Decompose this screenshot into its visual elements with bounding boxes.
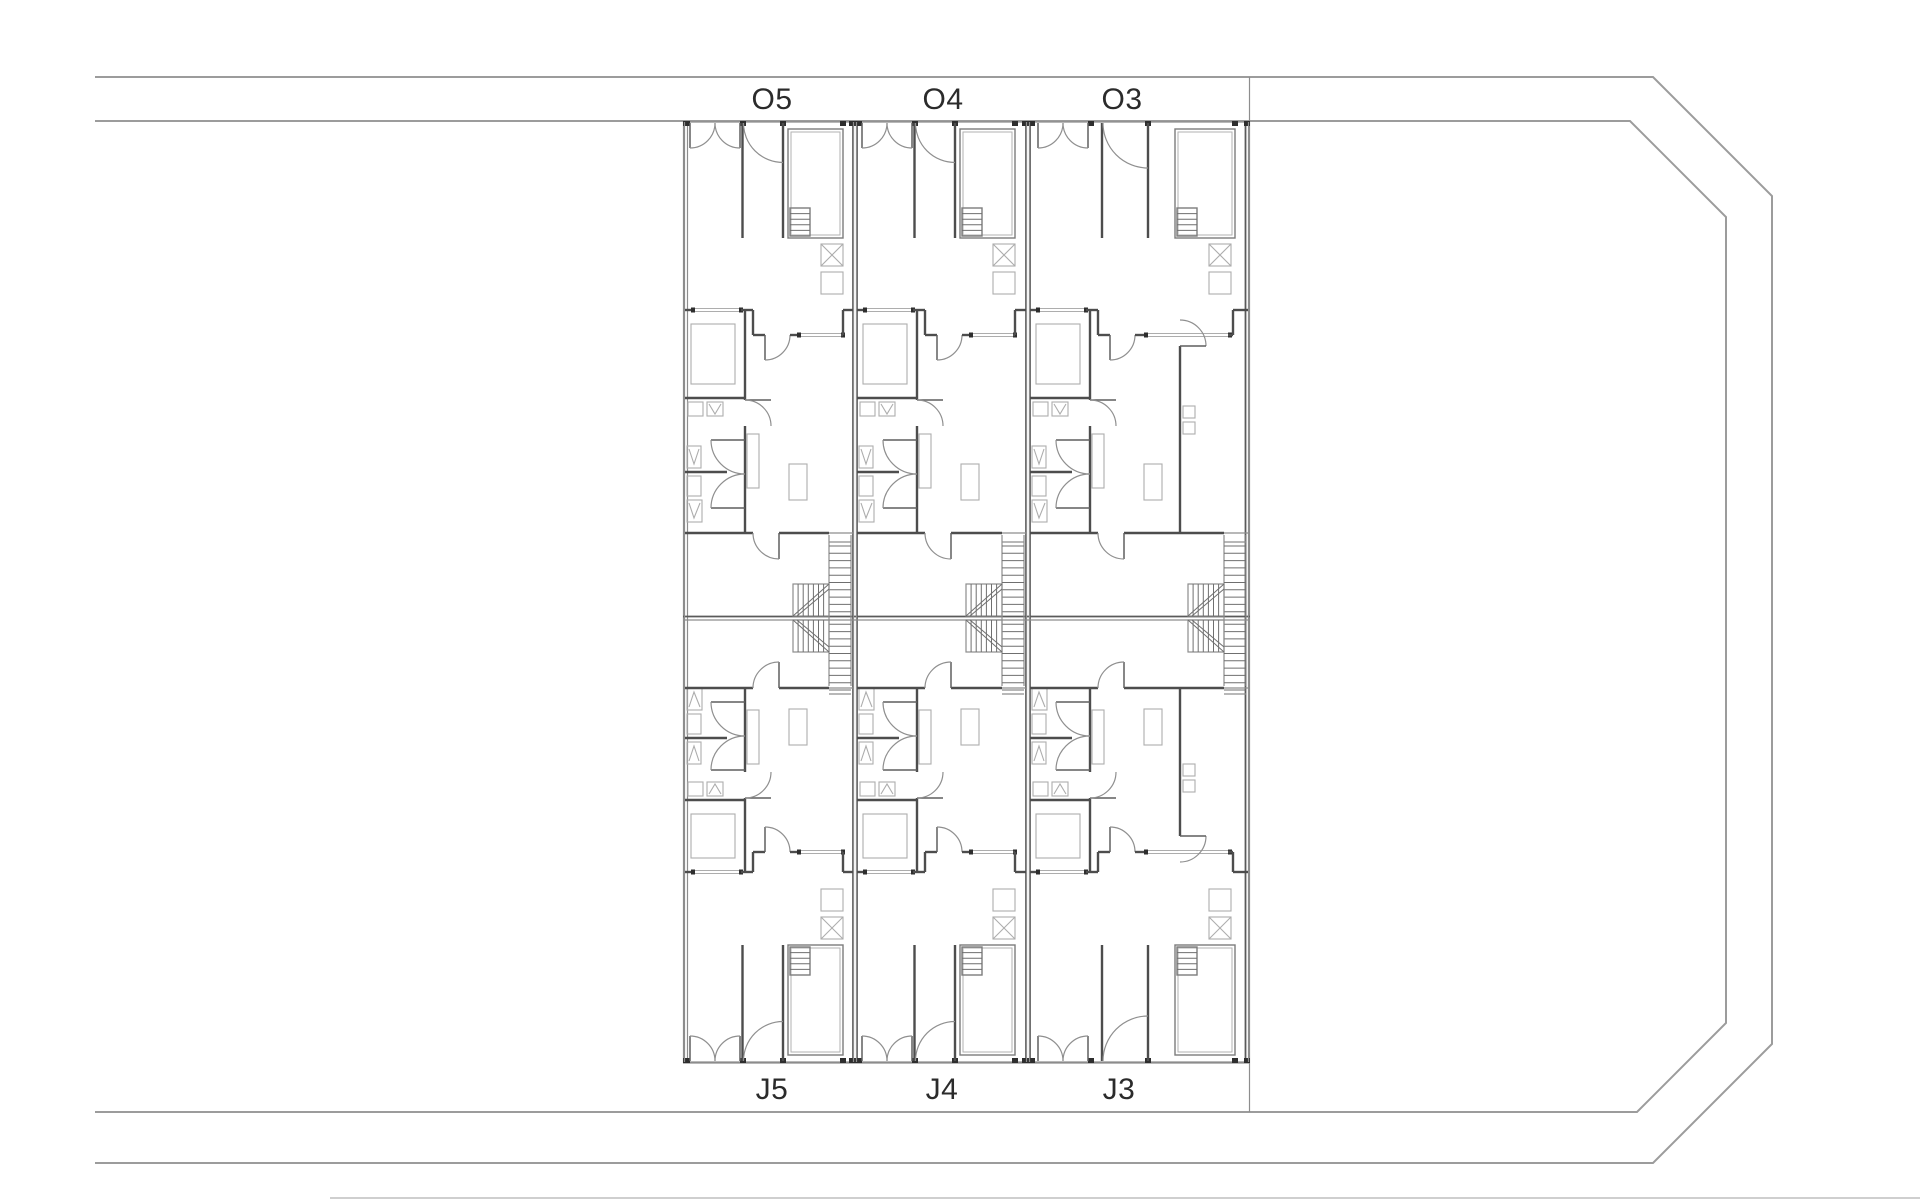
page: O5 O4 O3 J5 J4 J3 [0, 0, 1920, 1200]
unit-plan-J5 [683, 618, 855, 1063]
unit-plan-O4 [855, 121, 1028, 618]
unit-plan-J3 [1028, 618, 1250, 1063]
unit-label-j4: J4 [926, 1073, 959, 1106]
floor-plan-canvas: O5 O4 O3 J5 J4 J3 [0, 0, 1920, 1200]
unit-label-j5: J5 [756, 1073, 789, 1106]
unit-plan-O3 [1028, 121, 1250, 618]
unit-plan-J4 [855, 618, 1028, 1063]
unit-label-o3: O3 [1101, 83, 1142, 116]
unit-label-o4: O4 [922, 83, 963, 116]
unit-label-o5: O5 [751, 83, 792, 116]
unit-plans [683, 121, 1250, 1063]
unit-label-j3: J3 [1103, 1073, 1136, 1106]
unit-plan-O5 [683, 121, 855, 618]
site-boundary [95, 77, 1920, 1198]
